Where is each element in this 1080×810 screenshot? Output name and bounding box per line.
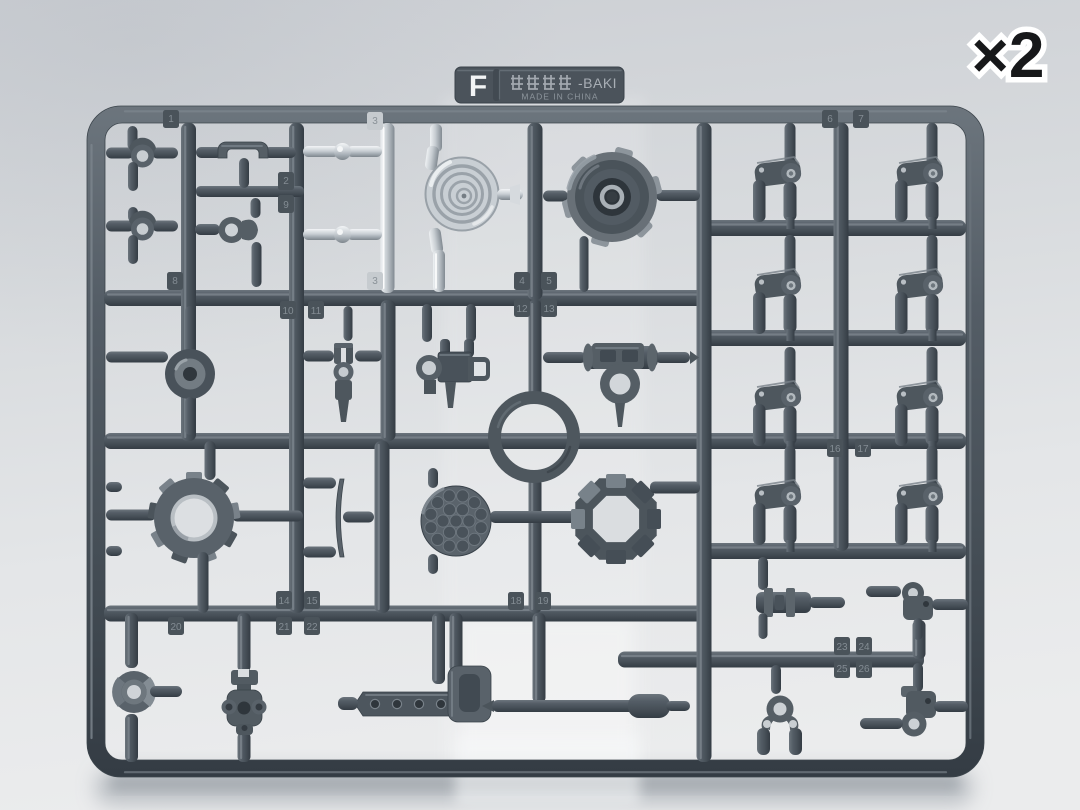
svg-text:22: 22 — [306, 622, 318, 633]
svg-text:5: 5 — [546, 276, 552, 287]
svg-text:11: 11 — [311, 306, 322, 317]
svg-text:3: 3 — [372, 276, 378, 287]
svg-text:21: 21 — [278, 622, 290, 633]
svg-text:15: 15 — [306, 596, 318, 607]
svg-text:3: 3 — [372, 116, 378, 127]
svg-text:24: 24 — [858, 642, 870, 653]
svg-text:14: 14 — [278, 596, 290, 607]
svg-text:18: 18 — [510, 596, 522, 607]
svg-text:1: 1 — [168, 114, 174, 125]
svg-text:F: F — [469, 70, 487, 103]
svg-text:19: 19 — [537, 596, 549, 607]
svg-text:13: 13 — [543, 304, 555, 315]
svg-text:10: 10 — [282, 306, 294, 317]
svg-text:MADE IN CHINA: MADE IN CHINA — [521, 92, 598, 102]
svg-text:-BAKI: -BAKI — [578, 75, 617, 91]
svg-text:16: 16 — [829, 444, 841, 455]
svg-text:25: 25 — [836, 664, 848, 675]
svg-text:12: 12 — [516, 304, 528, 315]
svg-text:6: 6 — [827, 114, 833, 125]
svg-text:23: 23 — [836, 642, 848, 653]
svg-text:2: 2 — [283, 176, 289, 187]
svg-text:7: 7 — [858, 114, 864, 125]
svg-text:9: 9 — [283, 200, 289, 211]
svg-text:17: 17 — [857, 444, 869, 455]
svg-text:4: 4 — [519, 276, 525, 287]
svg-text:8: 8 — [172, 276, 178, 287]
svg-text:26: 26 — [858, 664, 870, 675]
svg-text:20: 20 — [170, 622, 182, 633]
svg-text:×2: ×2 — [972, 19, 1045, 91]
